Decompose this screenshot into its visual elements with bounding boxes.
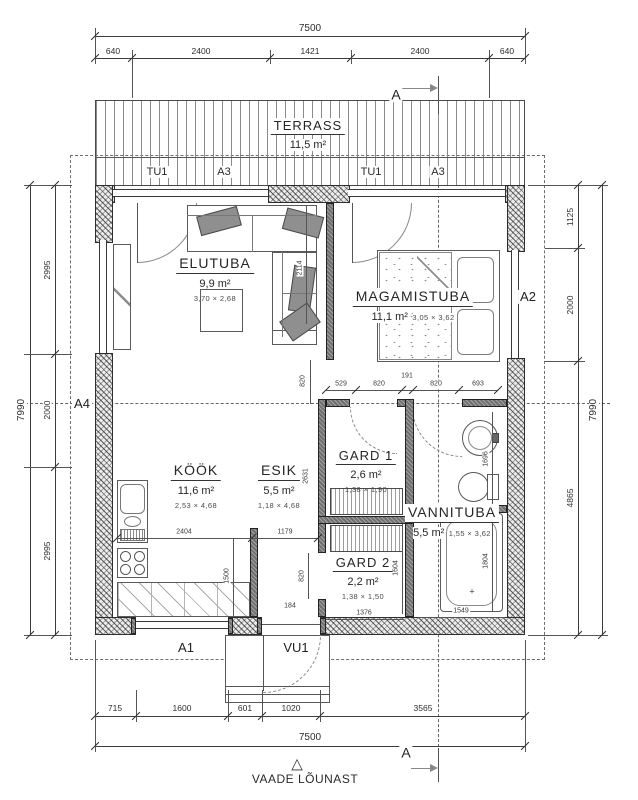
tv-bench	[113, 244, 131, 350]
dim-line	[308, 553, 309, 599]
dim-label: 1500	[224, 567, 231, 585]
dim-label: 820	[429, 381, 443, 388]
wall-esik-gard-upper	[318, 399, 326, 553]
dim-label: 2000	[43, 400, 52, 421]
section-marker-a-bottom: A	[399, 745, 412, 760]
dim-line	[30, 185, 31, 635]
view-label: VAADE LÕUNAST	[252, 772, 358, 786]
window-jamb	[228, 618, 233, 634]
room-area: 5,5 m²	[263, 485, 294, 497]
sofa-seam	[252, 215, 253, 252]
section-tick-top	[438, 76, 439, 114]
dim-line	[95, 36, 525, 37]
dim-ext	[545, 248, 585, 249]
room-area: 11,6 m²	[178, 485, 214, 497]
room-label-esik: ESIK 5,5 m² 1,18 × 4,68	[258, 462, 300, 510]
dim-ext	[545, 361, 585, 362]
dim-label: 2995	[43, 260, 52, 281]
kitchen-sink-basin	[120, 484, 145, 514]
room-dims: 1,38 × 1,50	[333, 592, 393, 601]
stove-burner	[120, 564, 131, 575]
dim-label: 7500	[298, 24, 322, 34]
room-area: 5,5 m²	[413, 527, 444, 539]
dim-label: 2000	[566, 295, 575, 316]
dim-label: 4865	[566, 488, 575, 509]
room-name: MAGAMISTUBA	[353, 288, 473, 307]
stove-burner	[120, 551, 131, 562]
window-tag-a1: A1	[176, 641, 196, 655]
section-arrow-line-top	[400, 88, 430, 89]
wall-kook-esik-stub	[250, 528, 258, 617]
gard2-wardrobe	[330, 525, 403, 552]
door-threshold-vu1	[262, 624, 320, 625]
wall-esik-gard-lower	[318, 599, 326, 617]
dim-label: 715	[107, 704, 123, 713]
dim-line	[117, 538, 318, 539]
terrace-edge-line	[95, 157, 525, 158]
room-area: 9,9 m²	[199, 278, 230, 290]
door-leaf-vu1	[263, 635, 264, 691]
wall-left-lower	[95, 353, 113, 635]
dim-line	[95, 746, 525, 747]
porch-step-line	[225, 686, 330, 687]
wall-top-pier-middle	[268, 185, 350, 203]
elevation-marker-a2: A2	[518, 290, 538, 304]
sofa-seam	[282, 293, 317, 294]
dim-label: 693	[471, 381, 485, 388]
wall-hall-north-right	[462, 399, 507, 407]
door-leaf-magamistuba-terrace	[352, 203, 353, 263]
dim-ext	[24, 467, 72, 468]
dim-line	[310, 360, 311, 404]
wall-right-lower	[507, 358, 525, 635]
wall-bottom-left	[95, 617, 136, 635]
dim-label: 1604	[393, 559, 400, 577]
dim-ext	[525, 640, 526, 752]
dim-label: 820	[300, 374, 307, 388]
bathtub-drain: +	[468, 588, 475, 597]
room-dims: 1,38 × 1,90	[336, 485, 396, 494]
room-label-gard2: GARD 2 2,2 m² 1,38 × 1,50	[333, 554, 393, 601]
dim-label: 2404	[175, 529, 193, 536]
room-name: GARD 1	[336, 448, 396, 465]
room-dims: 2,53 × 4,68	[171, 501, 221, 510]
dim-line	[492, 412, 493, 507]
dim-ext	[528, 635, 608, 636]
toilet-tank	[487, 474, 499, 500]
dim-label: 191	[400, 373, 414, 380]
dim-line	[95, 58, 525, 59]
dim-label: 640	[105, 47, 121, 56]
dim-line	[418, 617, 505, 618]
wall-elutuba-magamistuba	[326, 203, 334, 360]
door-jamb	[320, 618, 326, 634]
dim-label: 1376	[355, 610, 373, 617]
dim-label: 601	[237, 704, 253, 713]
window-glazing-top-left	[113, 189, 270, 197]
room-area: 11,5 m²	[290, 139, 326, 151]
room-label-magamistuba: MAGAMISTUBA 11,1 m² 3,05 × 3,62	[353, 288, 473, 325]
section-marker-a-top: A	[389, 87, 402, 102]
section-tick-bottom	[438, 748, 439, 782]
section-arrow-head-bottom	[430, 764, 438, 772]
view-direction-triangle-icon: △	[291, 757, 303, 772]
bathroom-sink-basin	[468, 426, 492, 450]
toilet-bowl	[458, 472, 489, 502]
porch-step-line	[225, 694, 330, 695]
dim-line	[402, 524, 403, 614]
dim-label: 7500	[298, 733, 322, 743]
dim-label: 1179	[276, 529, 293, 536]
wall-gard1-gard2	[318, 516, 414, 524]
door-jamb	[257, 618, 262, 634]
dim-label: 7990	[589, 398, 599, 422]
door-leaf-elutuba-terrace	[137, 203, 138, 263]
elevation-marker-a4: A4	[72, 397, 92, 411]
room-label-terrass: TERRASS 11,5 m²	[271, 117, 345, 153]
window-tag-a3-left: A3	[215, 166, 232, 178]
dim-label: 1600	[172, 704, 193, 713]
door-tag-tu1-left: TU1	[145, 166, 170, 178]
room-area: 2,2 m²	[347, 576, 378, 588]
dim-label: 1125	[566, 207, 575, 227]
dim-label: 1804	[483, 552, 490, 570]
dim-line	[602, 185, 603, 635]
dim-label: 2400	[191, 47, 212, 56]
sink-faucet	[492, 433, 499, 443]
room-name: GARD 2	[333, 555, 393, 572]
dim-label: 820	[372, 381, 386, 388]
room-name: TERRASS	[271, 118, 345, 135]
dim-line	[578, 185, 579, 635]
dim-ext	[528, 185, 608, 186]
wall-left-upper	[95, 185, 113, 243]
window-glazing-right	[511, 250, 519, 360]
window-glazing-left	[99, 240, 107, 355]
room-dims: 1,55 × 3,62	[449, 529, 491, 538]
dim-line	[326, 619, 403, 620]
dim-ext	[95, 640, 96, 752]
room-dims: 1,18 × 4,68	[258, 501, 300, 510]
dim-label: 7990	[17, 398, 27, 422]
dim-label: 640	[499, 47, 515, 56]
dim-ext	[24, 354, 72, 355]
dim-label: 1421	[300, 47, 321, 56]
window-tag-a3-right: A3	[429, 166, 446, 178]
dim-ext	[136, 690, 137, 722]
wall-hall-north-left	[326, 399, 350, 407]
room-name: VANNITUBA	[405, 504, 499, 523]
kitchen-counter	[117, 582, 250, 617]
dim-label: 184	[283, 603, 297, 610]
section-arrow-head-top	[430, 84, 438, 92]
kitchen-drainboard	[120, 529, 145, 541]
window-jamb	[131, 618, 136, 634]
dim-label: 1696	[483, 450, 490, 468]
dim-label: 2631	[303, 467, 310, 485]
room-label-elutuba: ELUTUBA 9,9 m² 3,70 × 2,68	[176, 255, 254, 303]
room-label-kook: KÖÖK 11,6 m² 2,53 × 4,68	[171, 462, 221, 510]
dim-label: 2995	[43, 541, 52, 562]
door-tag-vu1: VU1	[281, 641, 310, 655]
room-label-vannituba: VANNITUBA 5,5 m² 1,55 × 3,62	[405, 504, 499, 541]
dim-label: 2114	[297, 259, 304, 276]
dim-label: 529	[334, 381, 348, 388]
wall-right-upper	[507, 185, 525, 252]
dim-label: 2400	[410, 47, 431, 56]
dim-label: 3565	[413, 704, 434, 713]
room-name: ESIK	[258, 462, 300, 481]
window-glazing-top-right	[348, 189, 507, 197]
stove-burner	[134, 564, 145, 575]
dim-line	[55, 185, 56, 635]
dim-ext	[24, 635, 72, 636]
door-tag-tu1-right: TU1	[359, 166, 384, 178]
room-area: 2,6 m²	[350, 469, 381, 481]
floor-plan-canvas: A 7500 640 2400 1421 2400 640 7990 2995 …	[0, 0, 638, 800]
room-area: 11,1 m²	[371, 311, 407, 323]
dim-label: 1020	[281, 704, 302, 713]
kitchen-sink-small-basin	[124, 516, 141, 527]
room-dims: 3,05 × 3,62	[412, 313, 454, 322]
dim-line	[95, 716, 525, 717]
dim-ext	[24, 185, 72, 186]
dim-line	[306, 205, 307, 324]
sofa-seam	[282, 252, 283, 337]
dim-label: 820	[299, 569, 306, 583]
dim-line	[233, 538, 234, 617]
room-name: KÖÖK	[171, 462, 221, 481]
room-dims: 3,70 × 2,68	[176, 294, 254, 303]
room-label-gard1: GARD 1 2,6 m² 1,38 × 1,90	[336, 447, 396, 494]
stove-burner	[134, 551, 145, 562]
window-glazing-a1	[136, 621, 228, 629]
dim-label: 1549	[452, 608, 470, 615]
room-name: ELUTUBA	[176, 255, 254, 274]
